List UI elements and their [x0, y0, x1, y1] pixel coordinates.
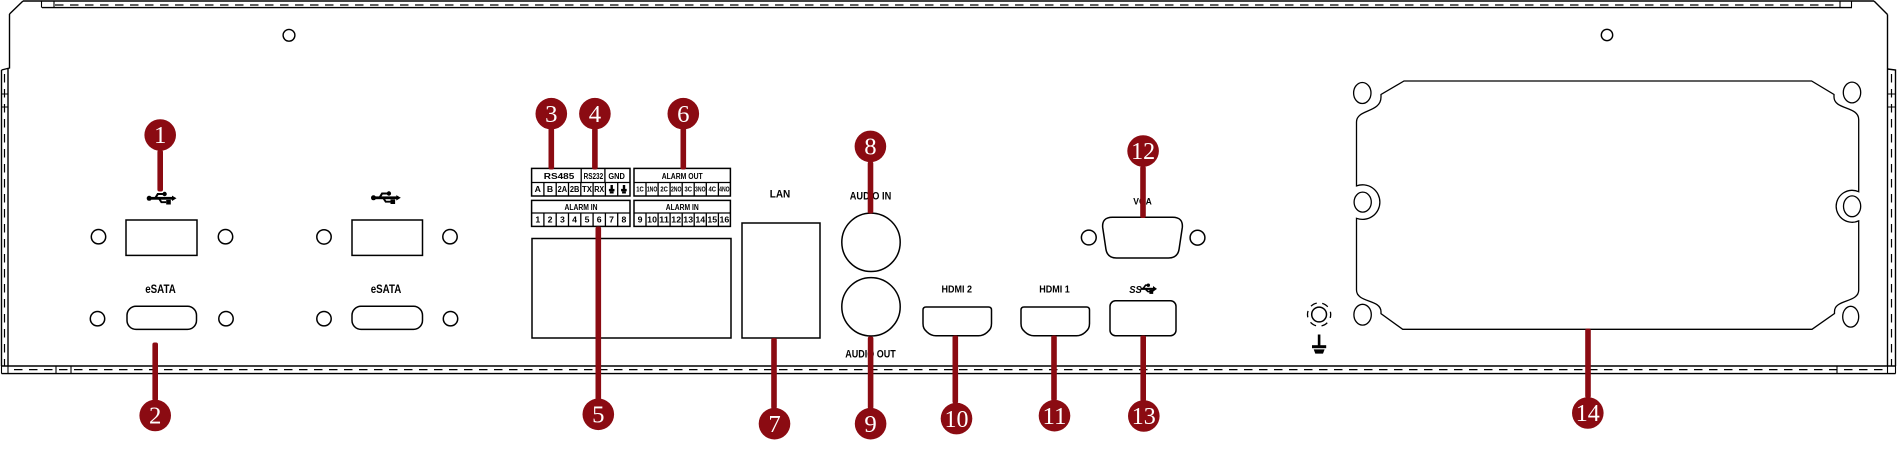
svg-text:5: 5 — [585, 215, 590, 225]
svg-text:3NO: 3NO — [695, 185, 706, 194]
svg-text:2: 2 — [149, 403, 161, 430]
svg-text:ALARM IN: ALARM IN — [666, 202, 699, 212]
svg-text:13: 13 — [683, 215, 693, 225]
svg-text:9: 9 — [638, 215, 643, 225]
svg-text:12: 12 — [671, 215, 681, 225]
svg-text:8: 8 — [621, 215, 626, 225]
svg-text:4: 4 — [572, 215, 577, 225]
svg-text:4C: 4C — [709, 185, 717, 194]
svg-text:RS232: RS232 — [584, 171, 604, 181]
svg-text:2C: 2C — [660, 185, 668, 194]
svg-text:ALARM OUT: ALARM OUT — [662, 171, 704, 181]
svg-text:15: 15 — [707, 215, 717, 225]
svg-text:4: 4 — [589, 101, 601, 128]
svg-text:3C: 3C — [684, 185, 692, 194]
svg-text:11: 11 — [659, 215, 669, 225]
svg-text:2: 2 — [548, 215, 553, 225]
svg-text:SS: SS — [1129, 284, 1142, 296]
svg-text:3: 3 — [545, 101, 557, 128]
svg-text:HDMI 1: HDMI 1 — [1039, 284, 1070, 295]
svg-text:ALARM IN: ALARM IN — [565, 202, 598, 212]
svg-text:TX: TX — [582, 184, 592, 194]
svg-text:eSATA: eSATA — [145, 284, 176, 296]
svg-text:7: 7 — [768, 411, 780, 438]
svg-text:1: 1 — [154, 122, 166, 149]
svg-text:LAN: LAN — [770, 189, 791, 201]
svg-text:3: 3 — [560, 215, 565, 225]
svg-text:GND: GND — [608, 171, 625, 181]
svg-text:4NO: 4NO — [719, 185, 730, 194]
svg-text:11: 11 — [1043, 403, 1067, 430]
svg-text:RX: RX — [594, 184, 604, 194]
svg-text:14: 14 — [695, 215, 705, 225]
svg-text:HDMI 2: HDMI 2 — [942, 284, 973, 295]
svg-text:RS485: RS485 — [544, 171, 575, 181]
svg-text:6: 6 — [597, 215, 602, 225]
svg-text:6: 6 — [677, 101, 689, 128]
svg-text:A: A — [535, 184, 542, 194]
svg-text:14: 14 — [1576, 400, 1600, 427]
svg-text:B: B — [547, 184, 553, 194]
svg-text:1C: 1C — [636, 185, 644, 194]
svg-text:2NO: 2NO — [671, 185, 682, 194]
svg-text:16: 16 — [720, 215, 730, 225]
svg-text:9: 9 — [864, 411, 876, 438]
svg-text:eSATA: eSATA — [371, 284, 402, 296]
svg-text:8: 8 — [864, 134, 876, 161]
svg-text:10: 10 — [647, 215, 657, 225]
svg-text:13: 13 — [1132, 403, 1156, 430]
svg-text:10: 10 — [945, 406, 969, 433]
svg-text:7: 7 — [609, 215, 614, 225]
svg-text:2B: 2B — [570, 184, 580, 194]
svg-text:1: 1 — [535, 215, 540, 225]
svg-text:12: 12 — [1131, 138, 1155, 165]
svg-text:2A: 2A — [558, 184, 568, 194]
svg-text:1NO: 1NO — [647, 185, 658, 194]
svg-text:5: 5 — [592, 402, 604, 429]
